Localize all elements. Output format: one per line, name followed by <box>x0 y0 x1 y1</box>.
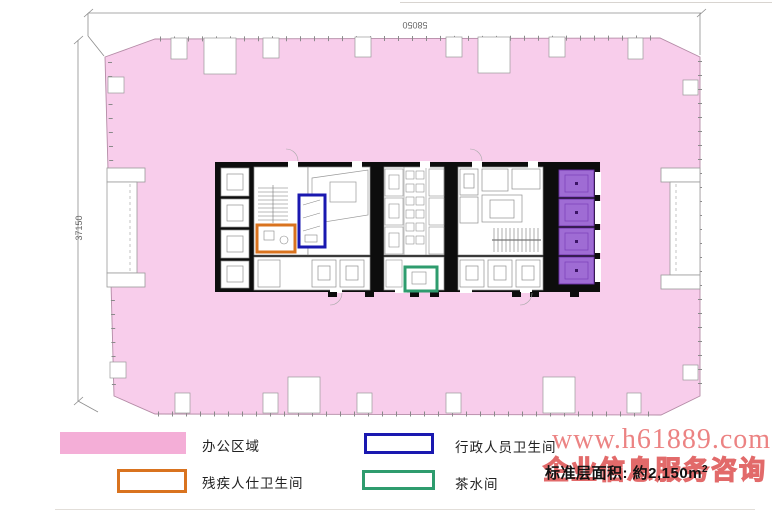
legend-swatch-disabled-toilet <box>117 469 187 493</box>
highlight-admin-toilet <box>299 195 325 247</box>
top-rule <box>400 2 772 3</box>
floor-area-sup: 2 <box>702 464 708 475</box>
highlight-disabled-toilet <box>257 225 295 252</box>
floor-area-note: 标准层面积: 約2,150m2 <box>545 462 708 483</box>
legend-swatch-office-area <box>60 432 186 454</box>
floor-area-value: 2,150m <box>648 465 702 482</box>
service-core <box>215 149 601 305</box>
dimension-left-value: 37150 <box>74 215 84 240</box>
floor-plan-page: 58050 37150 <box>0 0 776 513</box>
legend-label-admin-toilet: 行政人员卫生间 <box>455 436 557 456</box>
dimension-top-value: 58050 <box>402 20 427 30</box>
legend-label-office-area: 办公区域 <box>202 435 260 455</box>
bottom-rule <box>55 509 755 510</box>
legend-swatch-tea-room <box>362 470 435 490</box>
floor-area-prefix: 标准层面积: 約 <box>545 465 648 482</box>
legend-swatch-admin-toilet <box>364 433 434 454</box>
legend-label-disabled-toilet: 残疾人仕卫生间 <box>202 472 304 492</box>
core-east-rooms <box>458 167 543 290</box>
legend-label-tea-room: 茶水间 <box>455 473 499 493</box>
highlight-tea-room <box>405 267 437 291</box>
